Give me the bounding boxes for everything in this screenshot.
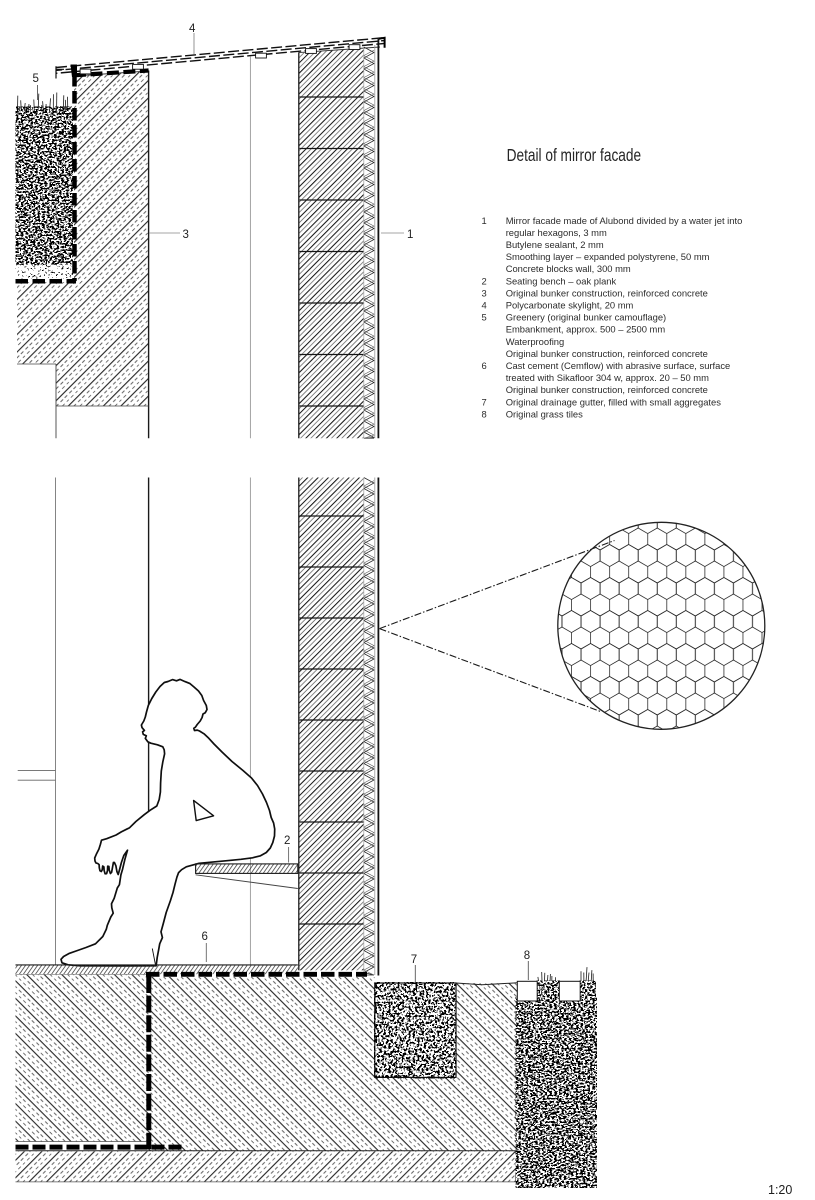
svg-text:Original bunker construction,: Original bunker construction, reinforced… (506, 348, 708, 359)
svg-text:Cast cement (Cemflow) with abr: Cast cement (Cemflow) with abrasive surf… (506, 360, 731, 371)
svg-text:4: 4 (482, 300, 487, 311)
svg-text:Original bunker construction,: Original bunker construction, reinforced… (506, 384, 708, 395)
svg-text:treated with Sikafloor 304 w,: treated with Sikafloor 304 w, approx. 20… (506, 372, 709, 383)
svg-text:Original grass tiles: Original grass tiles (506, 408, 583, 419)
svg-text:1: 1 (407, 229, 413, 241)
svg-text:3: 3 (482, 287, 487, 298)
svg-text:Butylene sealant, 2 mm: Butylene sealant, 2 mm (506, 239, 604, 250)
svg-text:regular hexagons, 3 mm: regular hexagons, 3 mm (506, 227, 607, 238)
svg-text:Greenery (original bunker camo: Greenery (original bunker camouflage) (506, 312, 667, 323)
svg-text:2: 2 (284, 835, 290, 847)
svg-text:1:20: 1:20 (768, 1183, 792, 1197)
svg-text:Detail of mirror facade: Detail of mirror facade (507, 145, 641, 165)
svg-text:Mirror facade made of Alubond: Mirror facade made of Alubond divided by… (506, 215, 743, 226)
svg-text:3: 3 (183, 229, 189, 241)
svg-text:6: 6 (202, 931, 208, 943)
svg-text:Polycarbonate skylight, 20 mm: Polycarbonate skylight, 20 mm (506, 300, 634, 311)
svg-text:5: 5 (33, 73, 39, 85)
svg-text:Waterproofing: Waterproofing (506, 336, 565, 347)
svg-text:Original drainage gutter, fill: Original drainage gutter, filled with sm… (506, 396, 722, 407)
svg-text:8: 8 (524, 950, 530, 962)
svg-text:Embankment, approx. 500 – 2500: Embankment, approx. 500 – 2500 mm (506, 324, 666, 335)
svg-text:Concrete blocks wall, 300 mm: Concrete blocks wall, 300 mm (506, 263, 631, 274)
svg-text:Smoothing layer – expanded pol: Smoothing layer – expanded polystyrene, … (506, 251, 710, 262)
svg-text:1: 1 (482, 215, 487, 226)
svg-text:2: 2 (482, 275, 487, 286)
svg-text:5: 5 (482, 312, 487, 323)
svg-text:Seating bench – oak plank: Seating bench – oak plank (506, 275, 617, 286)
svg-text:Original bunker construction,: Original bunker construction, reinforced… (506, 287, 708, 298)
svg-text:4: 4 (189, 23, 196, 35)
svg-text:7: 7 (411, 954, 417, 966)
svg-text:7: 7 (482, 396, 487, 407)
svg-text:6: 6 (482, 360, 487, 371)
svg-text:8: 8 (482, 408, 487, 419)
